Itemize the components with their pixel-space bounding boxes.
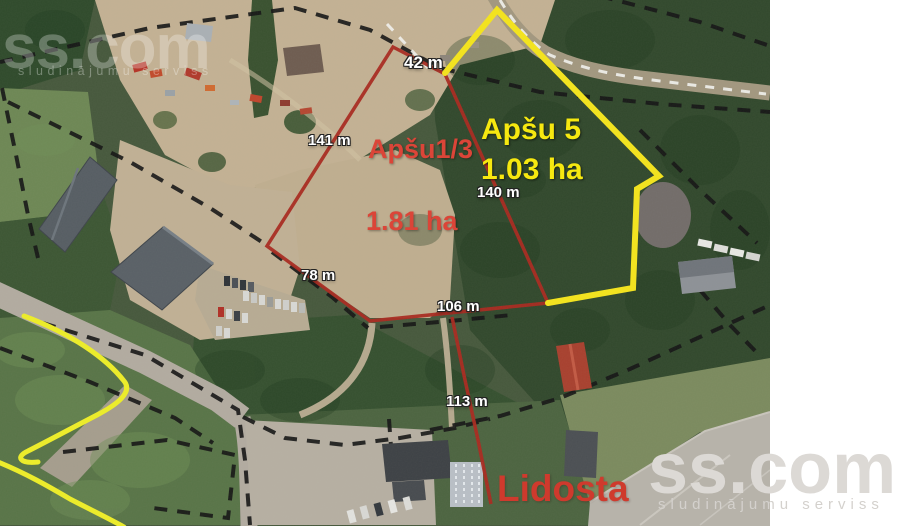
aerial-photo: 42 m 141 m 140 m 78 m 106 m 113 m Apšu1/… <box>0 0 770 526</box>
photo-grain <box>0 0 770 526</box>
measurement-140m: 140 m <box>477 185 520 200</box>
listing-image: 42 m 141 m 140 m 78 m 106 m 113 m Apšu1/… <box>0 0 910 526</box>
plot-apsu13-area: 1.81 ha <box>366 208 458 235</box>
measurement-106m: 106 m <box>437 299 480 314</box>
measurement-78m: 78 m <box>301 268 335 283</box>
plot-apsu5-area: 1.03 ha <box>481 155 583 185</box>
road-label-lidosta: Lidosta <box>497 470 629 507</box>
plot-apsu13-name: Apšu1/3 <box>368 136 473 163</box>
measurement-113m: 113 m <box>446 394 488 409</box>
measurement-141m: 141 m <box>308 133 351 148</box>
right-margin <box>770 0 910 526</box>
aerial-photo-graphics <box>0 0 770 526</box>
plot-apsu5-name: Apšu 5 <box>481 115 581 145</box>
measurement-42m: 42 m <box>404 54 443 71</box>
